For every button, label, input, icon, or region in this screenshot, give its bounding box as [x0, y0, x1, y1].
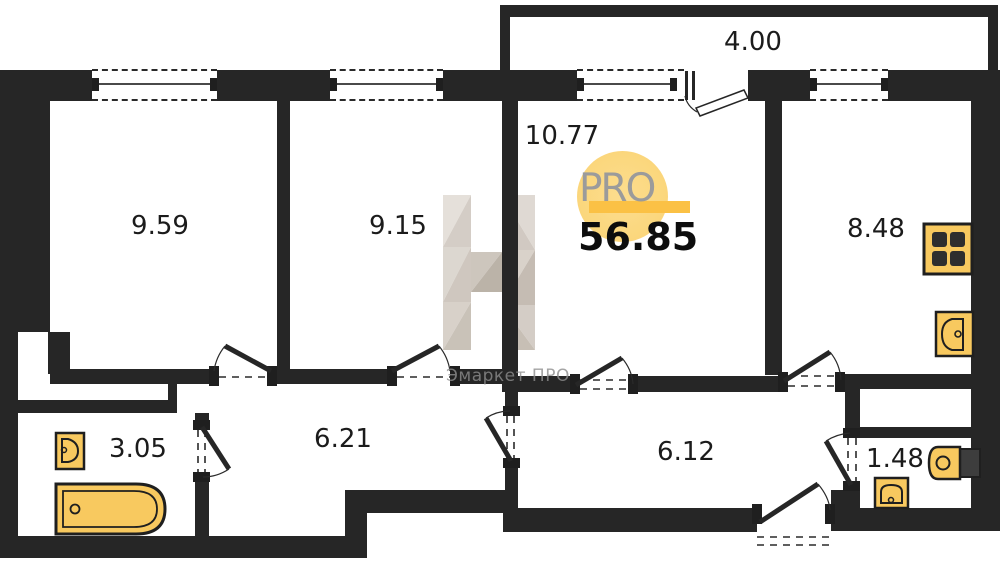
wall-segment [345, 490, 507, 513]
wall-segment [831, 490, 845, 510]
wall-segment [765, 101, 782, 375]
wall-segment [845, 486, 860, 510]
kitchen-sink-icon [936, 312, 973, 356]
area-label-bedroom2: 9.15 [369, 211, 427, 241]
wall-segment [505, 466, 518, 513]
wall-segment [505, 392, 518, 414]
wall-segment [503, 508, 757, 532]
wall-segment [502, 101, 518, 392]
entrance-door [752, 484, 835, 545]
wall-segment [0, 101, 50, 332]
wall-segment [50, 369, 212, 384]
wall-segment [0, 536, 345, 558]
door-hall [570, 358, 638, 394]
window-bedroom1 [92, 69, 217, 101]
area-label-corridor2: 6.12 [657, 437, 715, 467]
wall-segment [277, 101, 290, 384]
wall-segment [18, 400, 177, 413]
wall-segment [195, 413, 209, 430]
brand-watermark-text: Эмаркет ПРО [446, 366, 570, 386]
stove-icon [924, 224, 972, 274]
area-label-wc: 1.48 [866, 444, 924, 474]
area-label-balcony: 4.00 [724, 27, 782, 57]
wall-segment [443, 70, 577, 101]
floor-plan: 9.59 9.15 10.77 4.00 8.48 3.05 6.21 6.12… [0, 0, 1000, 563]
balcony-wall [500, 5, 998, 17]
wall-segment [168, 384, 177, 400]
wall-segment [217, 70, 330, 101]
wall-segment [48, 332, 70, 374]
logo-text: PRO [579, 166, 654, 211]
total-area-label: 56.85 [578, 215, 698, 259]
balcony-wall [988, 5, 998, 70]
wall-segment [843, 374, 971, 389]
balcony-wall [500, 5, 510, 70]
wall-segment [638, 376, 782, 392]
door-kitchen [778, 352, 845, 392]
wall-segment [748, 70, 810, 101]
wall-segment [277, 369, 397, 384]
area-label-hall: 10.77 [525, 121, 599, 151]
bathtub-icon [56, 484, 165, 534]
area-label-bedroom1: 9.59 [131, 211, 189, 241]
window-hall-balcony [577, 69, 684, 101]
wall-segment [860, 427, 971, 438]
window-bedroom2 [330, 69, 443, 101]
wall-segment [831, 508, 1000, 531]
wc-sink-icon [875, 478, 908, 508]
wall-segment [195, 476, 209, 538]
bathroom-sink-icon [56, 433, 84, 469]
door-corridor [486, 406, 520, 468]
area-label-bathroom: 3.05 [109, 434, 167, 464]
wall-segment [0, 332, 18, 558]
area-label-corridor1: 6.21 [314, 424, 372, 454]
area-label-kitchen: 8.48 [847, 214, 905, 244]
wall-segment [0, 70, 92, 101]
window-kitchen [810, 69, 888, 101]
balcony-door [685, 71, 748, 116]
door-bedroom1 [209, 346, 277, 386]
wall-segment [971, 70, 1000, 531]
